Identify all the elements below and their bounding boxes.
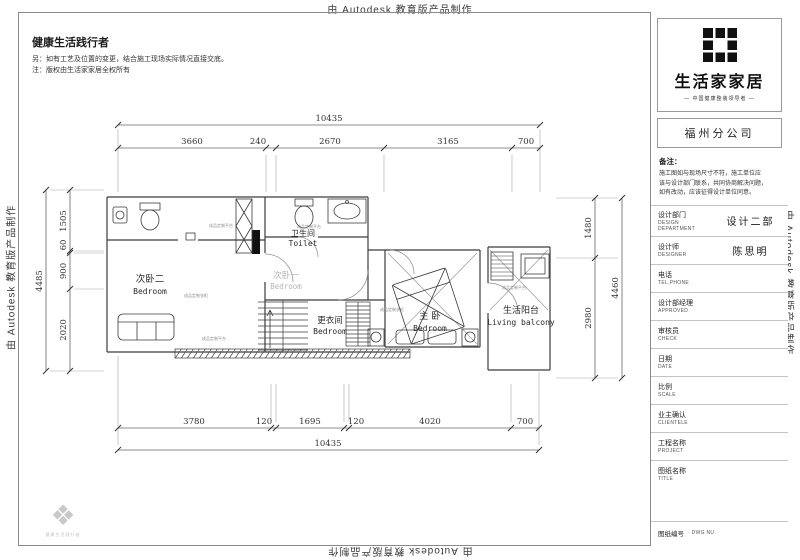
dim-bottom-2: 120 <box>256 417 272 427</box>
field-value: 设计二部 <box>720 213 781 228</box>
brand-logo-icon <box>703 28 737 62</box>
room-label-bedroom2-en: Bedroom <box>133 287 167 296</box>
field-label-en: CHECK <box>658 336 716 342</box>
field-designer: 设计师 DESIGNER 陈思明 <box>651 236 788 264</box>
sink-basin <box>334 203 360 219</box>
room-label-bedroom2-cn: 次卧二 <box>136 273 165 285</box>
annotation-2: 成品定制衣柜 <box>184 292 208 298</box>
room-label-master-en: Bedroom <box>413 324 447 333</box>
room-label-master-cn: 主 卧 <box>419 310 441 322</box>
wall-pier <box>252 230 260 254</box>
dim-left-total: 4485 <box>35 270 45 292</box>
brand-tagline: — 中国健康整装领导者 — <box>684 95 755 102</box>
dim-top-total: 10435 <box>315 114 342 124</box>
remarks-line-1: 施工图如与现场尺寸不符，施工单位应 <box>659 170 780 180</box>
field-label-en: CLIENTELE <box>658 420 716 426</box>
dim-top-2: 240 <box>250 137 266 147</box>
annotation-6: 成品定制平台 <box>502 284 526 290</box>
dim-top-1: 3660 <box>181 137 203 147</box>
field-label-cn: 图纸名称 <box>658 466 716 476</box>
room-label-toilet-cn: 卫生间 <box>291 228 315 238</box>
dim-left-3: 900 <box>59 263 69 279</box>
room-label-bedroom1-en: Bedroom <box>270 282 302 291</box>
field-date: 日期 DATE <box>651 348 788 376</box>
dim-top-3: 2670 <box>319 137 341 147</box>
dimension-labels: 10435 3660 240 2670 3165 700 3780 120 16… <box>35 114 621 449</box>
dim-bottom-1: 3780 <box>183 417 205 427</box>
dim-right-total: 4460 <box>611 277 621 299</box>
dim-bottom-3: 1695 <box>299 417 321 427</box>
cad-drawing-sheet: 由 Autodesk 教育版产品制作 由 Autodesk 教育版产品制作 由 … <box>0 0 800 560</box>
title-block: 生活家家居 — 中国健康整装领导者 — 福州分公司 备注： 施工图如与现场尺寸不… <box>650 12 788 546</box>
dim-bottom-4: 120 <box>348 417 364 427</box>
field-label-en: · DWG NU <box>688 530 714 536</box>
field-label-cn: 设计部门 <box>658 210 716 220</box>
field-check: 审核员 CHECK <box>651 320 788 348</box>
floor-plan-drawing: 10435 3660 240 2670 3165 700 3780 120 16… <box>0 0 650 560</box>
field-telephone: 电话 TEL.PHONE <box>651 264 788 292</box>
toilet-bowl-1 <box>141 210 159 230</box>
door-stop <box>186 233 195 240</box>
corner-caption: 健康生活践行者 <box>28 532 98 538</box>
dimension-ticks <box>43 122 625 453</box>
field-label-cn: 比例 <box>658 382 716 392</box>
room-label-closet-cn: 更衣间 <box>317 315 343 325</box>
balcony-fixtures <box>491 252 549 280</box>
dim-top-5: 700 <box>518 137 534 147</box>
field-label-en: PROJECT <box>658 448 716 454</box>
toilet-tank-1 <box>140 203 160 210</box>
room-label-toilet-en: Toilet <box>289 239 318 248</box>
field-label-cn: 图纸编号 <box>658 528 684 538</box>
field-label-cn: 设计师 <box>658 242 716 252</box>
field-design-department: 设计部门 DESIGN DEPARTMENT 设计二部 <box>651 205 788 236</box>
nightstand-left <box>368 329 384 346</box>
field-label-cn: 工程名称 <box>658 438 716 448</box>
field-label-en: SCALE <box>658 392 716 398</box>
brand-name: 生活家家居 <box>674 68 764 92</box>
remarks-section: 备注： 施工图如与现场尺寸不符，施工单位应 该与设计部门联系，共同协商解决问题，… <box>651 148 788 205</box>
field-label-en: TITLE <box>658 476 716 482</box>
field-clientele: 业主确认 CLIENTELE <box>651 404 788 432</box>
room-label-closet-en: Bedroom <box>313 327 347 336</box>
wardrobe <box>346 302 370 346</box>
toilet-tank-2 <box>295 199 313 206</box>
brand-logo-box: 生活家家居 — 中国健康整装领导者 — <box>657 18 782 112</box>
field-drawing-number: 图纸编号 · DWG NU <box>651 521 788 546</box>
dim-top-4: 3165 <box>437 137 459 147</box>
field-project: 工程名称 PROJECT <box>651 432 788 460</box>
dim-right-2: 2980 <box>584 307 594 329</box>
field-approved: 设计部经理 APPROVED <box>651 292 788 320</box>
field-label-en: DESIGNER <box>658 252 716 258</box>
field-label-en: APPROVED <box>658 308 716 314</box>
remarks-line-2: 该与设计部门联系，共同协商解决问题， <box>659 180 780 190</box>
field-label-cn: 日期 <box>658 354 716 364</box>
dim-bottom-5: 4020 <box>419 417 441 427</box>
field-label-en: DATE <box>658 364 716 370</box>
dim-left-1: 1505 <box>59 210 69 232</box>
sink-small <box>113 207 127 223</box>
dim-bottom-total: 10435 <box>314 439 341 449</box>
branch-box: 福州分公司 <box>657 118 782 148</box>
remarks-title: 备注： <box>659 156 780 167</box>
room-label-balcony-en: Living balcony <box>487 318 555 327</box>
room-label-balcony-cn: 生活阳台 <box>503 304 539 315</box>
annotation-4: 成品定制平台 <box>297 223 321 229</box>
bathroom-fixtures <box>113 203 195 240</box>
annotation-1: 成品定制平台 <box>209 222 233 228</box>
annotation-3: 成品定制平台 <box>202 335 226 341</box>
hatched-column <box>236 199 252 253</box>
dim-right-1: 1480 <box>584 217 594 239</box>
field-label-cn: 业主确认 <box>658 410 716 420</box>
field-label-cn: 电话 <box>658 270 716 280</box>
remarks-line-3: 如有改动，应该征得设计单位同意。 <box>659 189 780 199</box>
field-value: 陈思明 <box>720 243 781 258</box>
room-label-bedroom1-cn: 次卧一 <box>273 270 299 280</box>
field-scale: 比例 SCALE <box>651 376 788 404</box>
field-title: 图纸名称 TITLE <box>651 460 788 488</box>
compass-logo-icon: ❖ <box>28 502 98 530</box>
dim-left-4: 2020 <box>59 319 69 341</box>
field-label-cn: 设计部经理 <box>658 298 716 308</box>
field-label-en: TEL.PHONE <box>658 280 716 286</box>
corner-watermark: ❖ 健康生活践行者 <box>28 502 98 538</box>
dim-bottom-6: 700 <box>517 417 533 427</box>
railing-strip <box>175 349 410 358</box>
branch-name: 福州分公司 <box>685 125 755 141</box>
field-label-cn: 审核员 <box>658 326 716 336</box>
annotation-5: 成品定制衣柜 <box>380 306 404 312</box>
sofa <box>118 314 174 340</box>
field-label-en: DESIGN DEPARTMENT <box>658 220 716 232</box>
dim-left-2: 60 <box>59 240 69 251</box>
staircase <box>258 300 308 352</box>
